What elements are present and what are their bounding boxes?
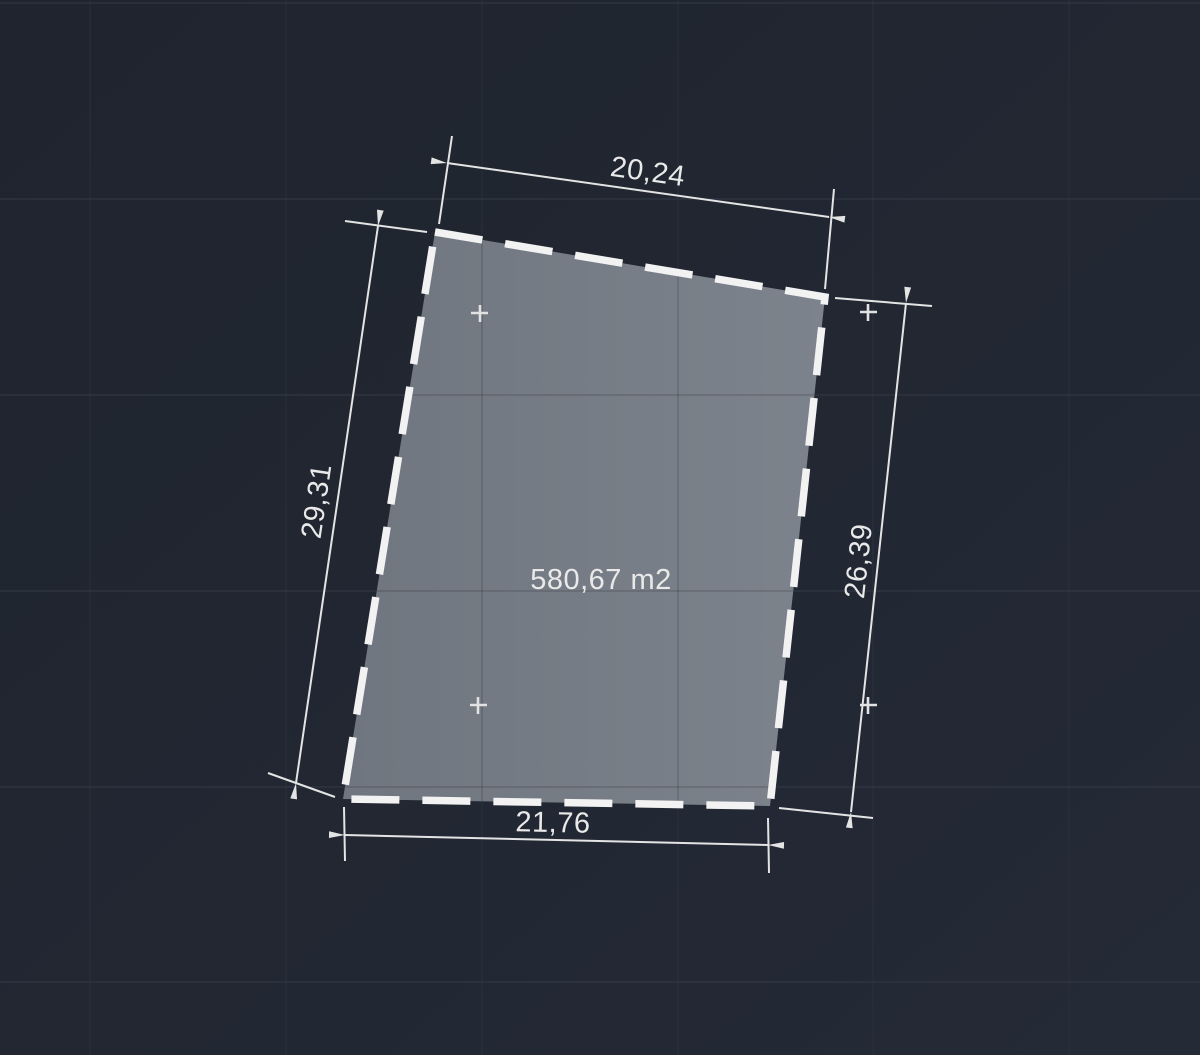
extension-line: [768, 818, 769, 873]
area-label[interactable]: 580,67 m2: [530, 564, 672, 596]
extension-line: [344, 807, 345, 861]
cad-viewport[interactable]: 20,24 29,31 26,39 21,76: [0, 0, 1200, 1055]
dimension-label-bottom: 21,76: [515, 806, 591, 839]
